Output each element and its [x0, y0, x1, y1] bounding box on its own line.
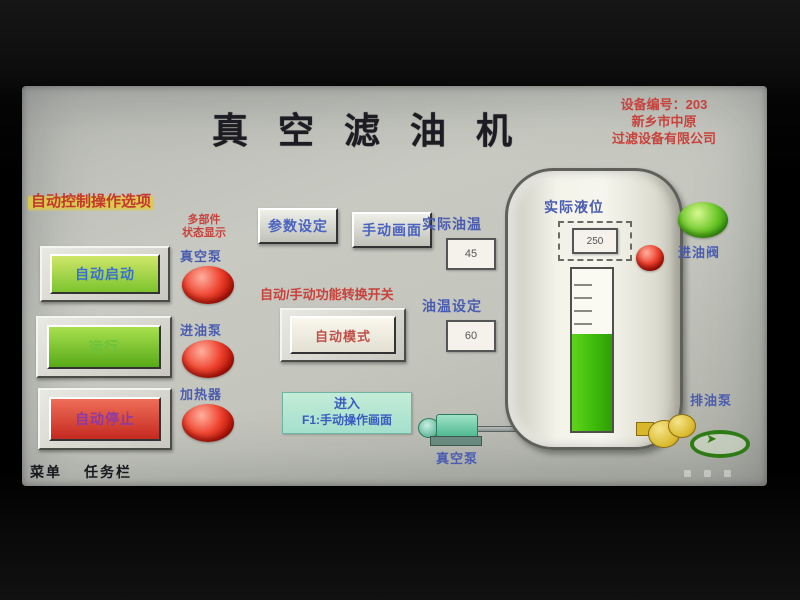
photo-frame: 真空滤油机 设备编号：203 新乡市中原 过滤设备有限公司 自动控制操作选项 多…: [0, 0, 800, 600]
enter-manual-button[interactable]: 进入 F1:手动操作画面: [282, 392, 412, 434]
auto-mode-button-label: 自动模式: [290, 316, 396, 354]
inlet-valve-lamp: [678, 202, 728, 238]
auto-start-button[interactable]: 自动启动: [40, 246, 170, 302]
osd-mark: [724, 470, 731, 477]
osd-mark: [684, 470, 691, 477]
vacuum-pump-lamp: [182, 266, 234, 304]
heater-label: 加热器: [180, 384, 222, 403]
actual-level-label: 实际液位: [544, 197, 604, 217]
enter-manual-line-1: 进入: [283, 395, 411, 413]
run-button[interactable]: 运行: [36, 316, 172, 378]
oil-pump-label: 进油泵: [180, 320, 222, 339]
auto-stop-button-label: 自动停止: [49, 397, 161, 441]
param-settings-button[interactable]: 参数设定: [258, 208, 338, 244]
vendor-info-line-2: 新乡市中原: [580, 113, 748, 130]
note-line-1: 多部件: [172, 214, 236, 227]
run-button-label: 运行: [47, 325, 161, 369]
auto-mode-button[interactable]: 自动模式: [280, 308, 406, 362]
actual-oil-temp-label: 实际油温: [422, 214, 482, 234]
oil-pump-lamp: [182, 340, 234, 378]
manual-screen-button[interactable]: 手动画面: [352, 212, 432, 248]
hmi-screen: 真空滤油机 设备编号：203 新乡市中原 过滤设备有限公司 自动控制操作选项 多…: [22, 86, 767, 486]
vendor-info-line-1: 设备编号：203: [580, 96, 748, 113]
taskbar-label[interactable]: 任务栏: [84, 462, 132, 482]
note-line-2: 状态显示: [172, 227, 236, 240]
inlet-valve-label: 进油阀: [678, 242, 720, 261]
heater-lamp: [182, 404, 234, 442]
page-title: 真空滤油机: [212, 102, 542, 154]
drain-pump-label: 排油泵: [690, 390, 732, 409]
vendor-info-line-3: 过滤设备有限公司: [580, 130, 748, 147]
level-gauge: [570, 267, 614, 433]
oil-temp-set-label: 油温设定: [422, 296, 482, 316]
actual-oil-temp-value: 45: [446, 238, 496, 270]
osd-mark: [704, 470, 711, 477]
auto-control-header: 自动控制操作选项: [28, 192, 154, 211]
oil-temp-set-value[interactable]: 60: [446, 320, 496, 352]
auto-start-button-label: 自动启动: [50, 254, 160, 294]
vacuum-pump-icon: [418, 410, 484, 446]
level-value: 250: [572, 228, 618, 254]
mode-switch-header: 自动/手动功能转换开关: [260, 286, 394, 303]
level-value-frame: 250: [558, 221, 632, 261]
oil-tank: 实际液位 250: [505, 168, 683, 450]
tank-red-ball-indicator: [636, 245, 664, 271]
vacuum-pump-label: 真空泵: [180, 246, 222, 265]
auto-stop-button[interactable]: 自动停止: [38, 388, 172, 450]
level-fill: [572, 334, 612, 431]
enter-manual-line-2: F1:手动操作画面: [283, 413, 411, 428]
drain-pump-icon: ➤: [648, 414, 748, 458]
vacuum-pump-caption: 真空泵: [436, 448, 478, 467]
menu-label[interactable]: 菜单: [30, 462, 62, 482]
